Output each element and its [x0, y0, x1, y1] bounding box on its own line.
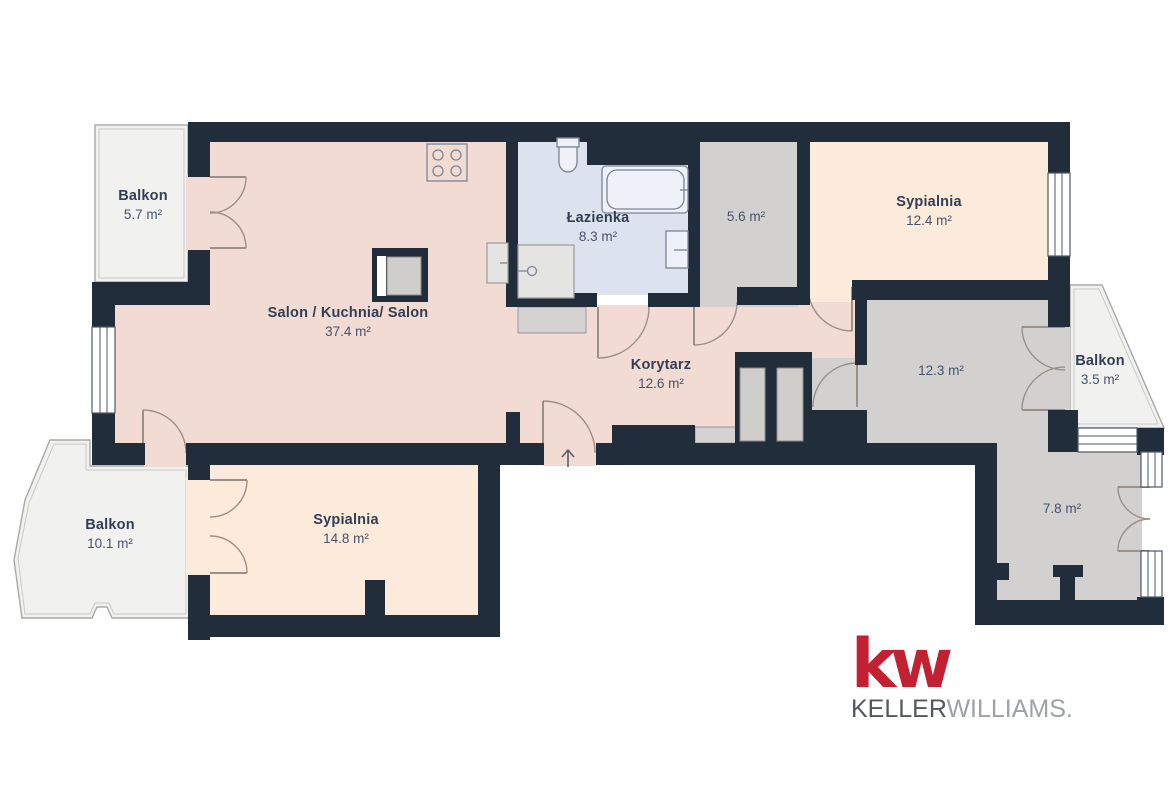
window-salon-left: [92, 327, 115, 413]
kw-logo-keller: KELLER: [851, 695, 946, 723]
room-name: Balkon: [1075, 353, 1125, 369]
entry-niche: [695, 427, 737, 443]
keller-williams-logo: kw KELLERWILLIAMS.: [851, 631, 1073, 724]
bathtub-icon: [602, 166, 688, 213]
room-name: Balkon: [118, 188, 168, 204]
room-name: Salon / Kuchnia/ Salon: [268, 305, 429, 321]
room-area: 37.4 m²: [268, 324, 429, 339]
floor-plan-page: Balkon 5.7 m² Salon / Kuchnia/ Salon 37.…: [0, 0, 1170, 785]
salon-balcony-threshold: [144, 443, 186, 467]
room-area: 5.7 m²: [118, 207, 168, 222]
room-area: 5.6 m²: [727, 209, 765, 224]
kw-logo-williams: WILLIAMS: [946, 695, 1065, 723]
balcony-right-threshold: [1045, 325, 1070, 412]
room-label-balkon-right: Balkon 3.5 m²: [1075, 353, 1125, 387]
room-label-balkon-bottom-left: Balkon 10.1 m²: [85, 517, 135, 551]
room-name: Sypialnia: [896, 194, 961, 210]
shower-icon: [518, 245, 574, 298]
kw-logo-suffix: .: [1066, 695, 1073, 723]
room-name: Korytarz: [631, 357, 691, 373]
bedroom-balcony-threshold: [186, 478, 212, 575]
toilet-icon: [557, 138, 579, 172]
room-label-korytarz: Korytarz 12.6 m²: [631, 357, 691, 391]
room-label-12-3: 12.3 m²: [918, 360, 964, 378]
window-below-right-balcony: [1078, 428, 1137, 452]
room-area: 3.5 m²: [1075, 372, 1125, 387]
sink-icon: [666, 231, 688, 268]
room-name: Balkon: [85, 517, 135, 533]
room-area: 10.1 m²: [85, 536, 135, 551]
room-area: 12.6 m²: [631, 376, 691, 391]
window-bedroom-top-right: [1048, 173, 1070, 256]
room-name: Sypialnia: [313, 512, 378, 528]
window-room-7-8-upper: [1141, 452, 1162, 487]
room-area: 14.8 m²: [313, 531, 378, 546]
hall-closet: [518, 307, 586, 333]
room-label-balkon-top-left: Balkon 5.7 m²: [118, 188, 168, 222]
room-label-sypialnia-top: Sypialnia 12.4 m²: [896, 194, 961, 228]
kw-logo-wordmark: KELLERWILLIAMS.: [851, 695, 1073, 724]
room-label-lazienka: Łazienka 8.3 m²: [567, 210, 630, 244]
washing-machine-icon: [487, 243, 508, 283]
shaft-left: [740, 368, 765, 441]
room-area: 12.4 m²: [896, 213, 961, 228]
room-name: Łazienka: [567, 210, 630, 226]
kw-logo-mark: kw: [851, 631, 1073, 699]
room-label-salon-kuchnia: Salon / Kuchnia/ Salon 37.4 m²: [268, 305, 429, 339]
entry-threshold: [542, 443, 596, 466]
room-label-storage: 5.6 m²: [727, 206, 765, 224]
balcony-door-threshold: [186, 175, 212, 252]
window-room-7-8-lower: [1141, 551, 1162, 597]
room-area: 12.3 m²: [918, 363, 964, 378]
room-label-sypialnia-bottom: Sypialnia 14.8 m²: [313, 512, 378, 546]
shaft-right: [777, 368, 803, 441]
room-label-7-8: 7.8 m²: [1043, 498, 1081, 516]
room-area: 7.8 m²: [1043, 501, 1081, 516]
room-12-3-alcove-floor: [808, 358, 868, 412]
room-area: 8.3 m²: [567, 229, 630, 244]
kitchen-island: [372, 248, 428, 302]
